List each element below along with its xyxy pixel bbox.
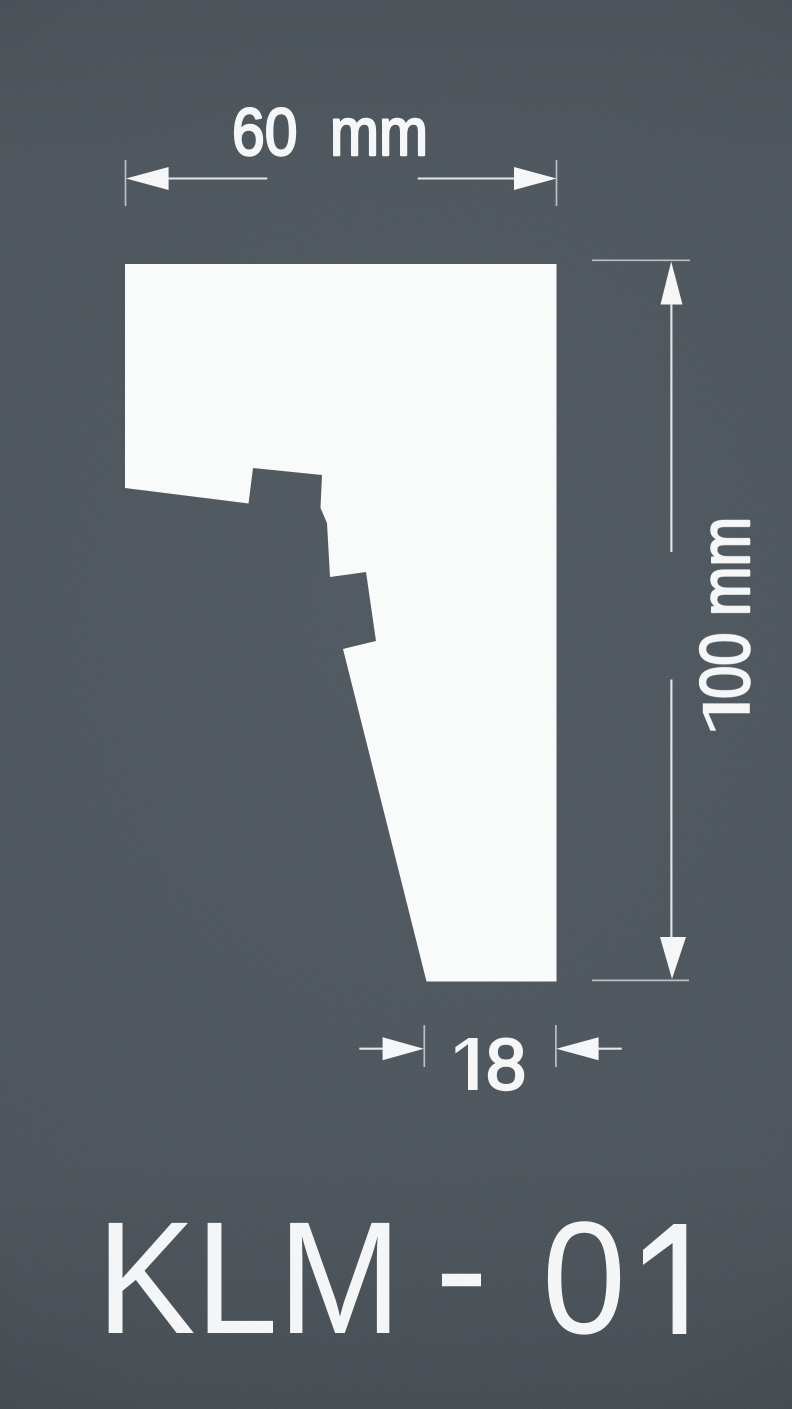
svg-text:8: 8 <box>486 1025 526 1106</box>
svg-text:60 mm: 60 mm <box>232 95 428 170</box>
svg-text:00 mm: 00 mm <box>686 517 764 699</box>
svg-text:-: - <box>435 1178 488 1357</box>
svg-text:0: 0 <box>542 1188 626 1367</box>
svg-text:KLM: KLM <box>97 1188 402 1367</box>
